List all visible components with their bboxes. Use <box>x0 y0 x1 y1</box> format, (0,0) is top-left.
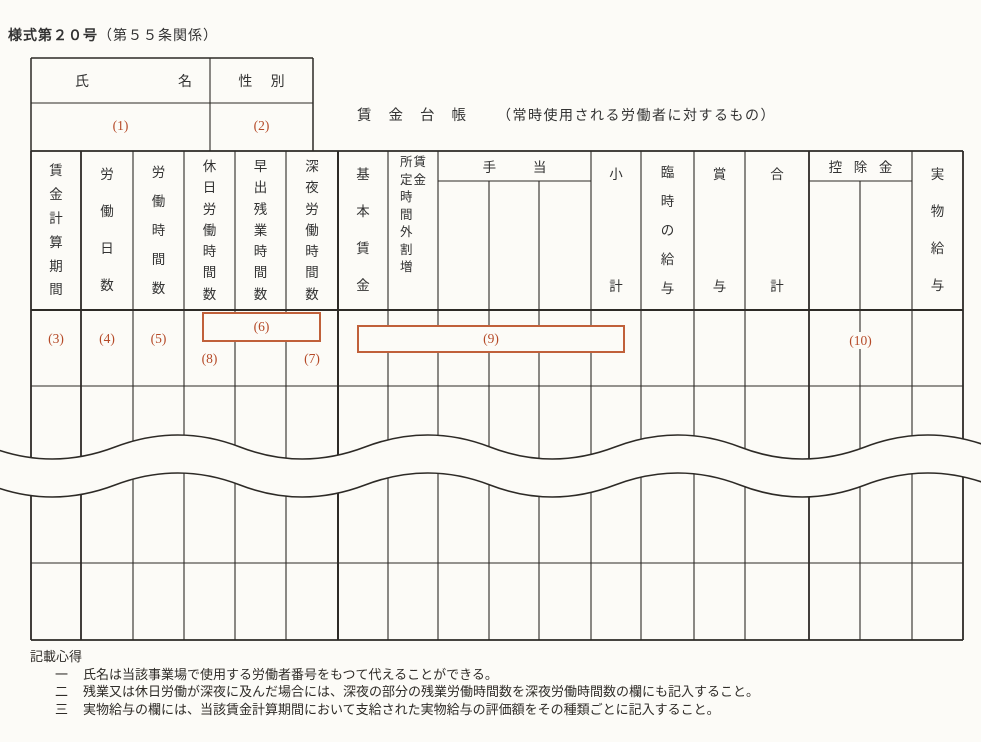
form-number: 様式第２０号 <box>8 29 98 44</box>
col-header-base-wage: 基本賃金 <box>339 154 387 307</box>
col-header-pay-period: 賃金計算期間 <box>32 154 80 307</box>
ref-work-days: (4) <box>81 331 133 347</box>
wage-ledger-form-page: 様式第２０号（第５５条関係） 賃金台帳 （常時使用される労働者に対するもの） 氏… <box>0 0 981 742</box>
notes-section: 記載心得 一 氏名は当該事業場で使用する労働者番号をもつて代えることができる。 … <box>30 648 759 718</box>
note-number: 三 <box>55 701 70 719</box>
col-header-late-night-hours: 深夜労働時間数 <box>287 154 337 307</box>
note-item: 三 実物給与の欄には、当該賃金計算期間において支給された実物給与の評価額をその種… <box>55 701 759 719</box>
note-number: 一 <box>55 666 70 684</box>
form-grid <box>0 0 981 742</box>
col-header-bonus: 賞与 <box>695 154 744 307</box>
note-text: 実物給与の欄には、当該賃金計算期間において支給された実物給与の評価額をその種類ご… <box>83 701 720 719</box>
note-item: 一 氏名は当該事業場で使用する労働者番号をもつて代えることができる。 <box>55 666 759 684</box>
note-number: 二 <box>55 683 70 701</box>
name-field-ref: (1) <box>31 118 210 134</box>
sex-field-ref: (2) <box>210 118 313 134</box>
regulation-reference: （第５５条関係） <box>98 29 218 44</box>
ref-deductions-label: (10) <box>845 332 876 349</box>
ref-box-overtime-hours: (6) <box>202 312 321 342</box>
col-header-deductions: 控除金 <box>809 151 912 181</box>
notes-heading: 記載心得 <box>30 648 759 666</box>
col-header-overtime-premium-wage: 所定時間外割増 賃金 <box>388 156 438 306</box>
ref-box-wage-items: (9) <box>357 325 625 353</box>
col-header-early-overtime-hours: 早出残業時間数 <box>236 154 285 307</box>
ref-deductions: (10) <box>810 333 911 349</box>
col-header-temporary-pay: 臨時の給与 <box>642 154 693 307</box>
overtime-premium-left-line: 所定時間外割増 <box>400 156 413 274</box>
col-header-holiday-work-hours: 休日労働時間数 <box>185 154 234 307</box>
form-number-heading: 様式第２０号（第５５条関係） <box>8 25 218 45</box>
col-header-payment-in-kind: 実物給与 <box>913 154 962 307</box>
ref-wage-box-label: (9) <box>483 331 499 347</box>
note-item: 二 残業又は休日労働が深夜に及んだ場合には、深夜の部分の残業労働時間数を深夜労働… <box>55 683 759 701</box>
col-header-work-days: 労働日数 <box>82 154 132 307</box>
ref-pay-period: (3) <box>31 331 81 347</box>
sex-header-cell: 性別 <box>210 58 313 103</box>
note-text: 残業又は休日労働が深夜に及んだ場合には、深夜の部分の残業労働時間数を深夜労働時間… <box>83 683 759 701</box>
page-break-wave <box>0 435 981 497</box>
col-header-work-hours: 労働時間数 <box>134 154 183 307</box>
ref-overtime-box-label: (6) <box>254 319 270 335</box>
col-header-subtotal: 小計 <box>592 154 640 307</box>
ref-holiday-hours: (8) <box>184 351 235 367</box>
document-title-note: （常時使用される労働者に対するもの） <box>497 105 776 125</box>
overtime-premium-right-line: 賃金 <box>414 156 427 186</box>
col-header-total: 合計 <box>746 154 808 307</box>
ref-late-night-hours: (7) <box>286 351 338 367</box>
ref-work-hours: (5) <box>133 331 184 347</box>
col-header-allowances: 手当 <box>438 151 591 181</box>
note-text: 氏名は当該事業場で使用する労働者番号をもつて代えることができる。 <box>83 666 498 684</box>
document-title: 賃金台帳 <box>357 104 483 125</box>
name-header-cell: 氏名 <box>31 58 210 103</box>
